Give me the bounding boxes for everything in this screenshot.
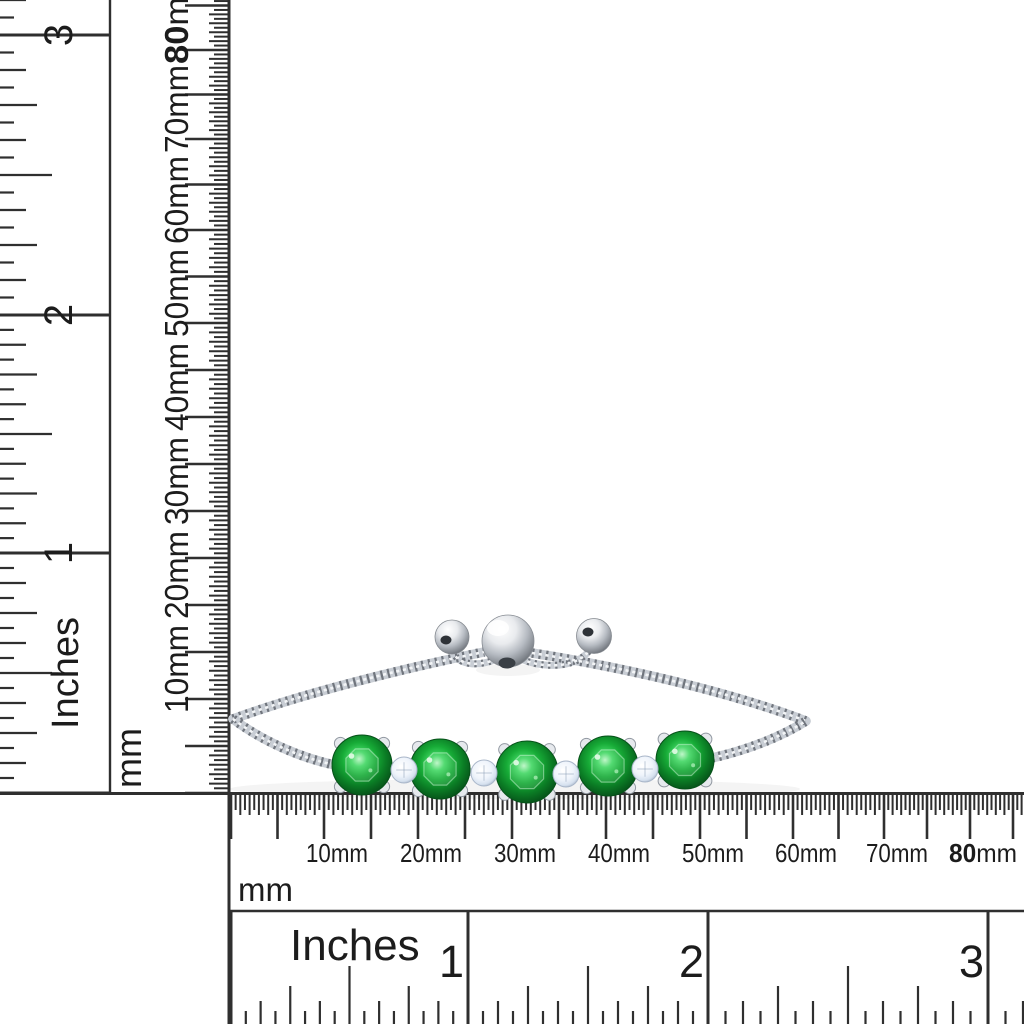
measurement-rulers: 123 10mm20mm30mm40mm50mm60mm70mm80mm 10m… xyxy=(0,0,1024,1024)
accent-stone xyxy=(471,760,497,786)
chain-lower-left xyxy=(233,719,335,765)
sparkle xyxy=(561,769,565,773)
inch-number-label: 1 xyxy=(37,542,81,564)
sparkle xyxy=(349,753,355,759)
adjuster-ball-left xyxy=(435,620,469,654)
mm-size-label: 70mm xyxy=(158,65,195,153)
sparkle xyxy=(614,769,618,773)
sparkle xyxy=(399,765,403,769)
accent-stone xyxy=(632,756,658,782)
sparkle xyxy=(513,760,519,766)
green-stone xyxy=(410,739,470,799)
sparkle xyxy=(640,764,644,768)
mm-size-label: 40mm xyxy=(588,838,650,868)
inch-number-label: 2 xyxy=(679,936,704,987)
mm-size-label: 70mm xyxy=(866,838,928,868)
horizontal-inches-unit-label: Inches xyxy=(290,921,420,970)
adjuster-ball-left-body xyxy=(435,620,469,654)
horizontal-mm-ruler: 10mm20mm30mm40mm50mm60mm70mm80mm xyxy=(231,795,1022,868)
mm-size-label: 80mm xyxy=(949,838,1017,868)
sparkle xyxy=(672,749,678,755)
sparkle xyxy=(479,768,483,772)
accent-stone xyxy=(553,761,579,787)
mm-size-label: 60mm xyxy=(775,838,837,868)
mm-size-label: 10mm xyxy=(158,625,195,713)
mm-size-label: 50mm xyxy=(682,838,744,868)
inch-number-label: 1 xyxy=(439,936,464,987)
mm-size-label: 20mm xyxy=(400,838,462,868)
sparkle xyxy=(446,772,450,776)
sparkle xyxy=(368,768,372,772)
mm-size-label: 30mm xyxy=(158,437,195,525)
mm-size-label: 40mm xyxy=(158,343,195,431)
mm-size-label: 50mm xyxy=(158,249,195,337)
mm-size-label: 30mm xyxy=(494,838,556,868)
green-stone xyxy=(496,741,558,803)
scene: 123 10mm20mm30mm40mm50mm60mm70mm80mm 10m… xyxy=(0,0,1024,1024)
adjuster-ball-right-hole xyxy=(583,628,594,637)
sparkle xyxy=(534,776,538,780)
green-stone xyxy=(578,736,638,796)
inch-number-label: 3 xyxy=(959,936,984,987)
adjuster-ball-right-body xyxy=(577,619,612,654)
chain-upper-left xyxy=(233,652,484,719)
sparkle xyxy=(691,763,695,767)
product-image: 123 10mm20mm30mm40mm50mm60mm70mm80mm 10m… xyxy=(0,0,1024,1024)
sparkle xyxy=(595,754,601,760)
mm-size-label: 80mm xyxy=(158,0,195,64)
green-stone xyxy=(656,731,714,789)
mm-size-label: 10mm xyxy=(306,838,368,868)
bracelet-photo xyxy=(230,615,806,803)
horizontal-mm-unit-label: mm xyxy=(238,871,293,908)
vertical-inches-unit-label: Inches xyxy=(45,617,87,729)
green-stone xyxy=(332,735,392,795)
adjuster-ball-right xyxy=(577,619,612,654)
accent-stone xyxy=(391,757,417,783)
mm-size-label: 20mm xyxy=(158,531,195,619)
slider-bead-notch xyxy=(499,658,516,669)
sparkle xyxy=(427,757,433,763)
adjuster-ball-left-hole xyxy=(441,636,452,645)
inch-number-label: 2 xyxy=(37,304,81,326)
slider-bead-highlight xyxy=(487,620,509,636)
mm-size-label: 60mm xyxy=(158,156,195,244)
inch-number-label: 3 xyxy=(37,24,81,46)
vertical-mm-ruler: 10mm20mm30mm40mm50mm60mm70mm80mm xyxy=(158,0,229,793)
vertical-mm-unit-label: mm xyxy=(108,728,149,788)
